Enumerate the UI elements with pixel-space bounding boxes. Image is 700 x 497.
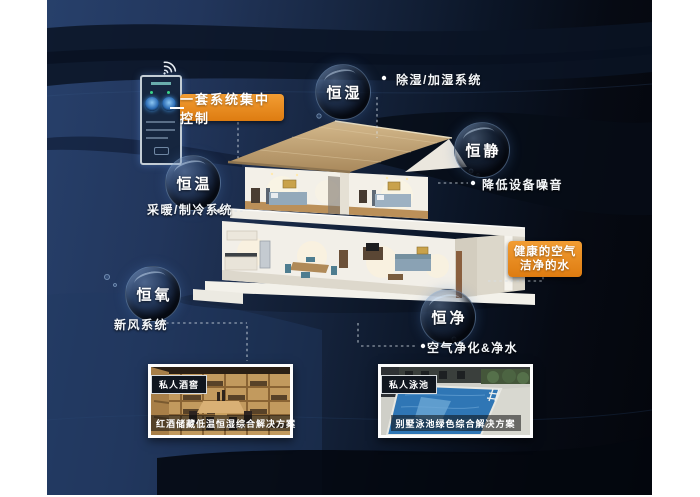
pool-tag: 私人泳池 — [381, 375, 437, 394]
bubble-constant-clean: 恒净 — [420, 289, 476, 345]
pool-caption: 别墅泳池绿色综合解决方案 — [390, 415, 520, 431]
panel-readout — [146, 121, 175, 123]
poster-canvas: 一套系统集中控制 健康的空气 洁净的水 恒湿 恒静 恒温 恒氧 恒净 除湿/加湿… — [0, 0, 700, 497]
clean-water-line: 洁净的水 — [510, 259, 580, 273]
label-dehumidify-system: 除湿/加湿系统 — [396, 71, 482, 88]
central-control-label: 一套系统集中控制 — [180, 94, 284, 121]
wine-cellar-caption: 红酒储藏低温恒湿综合解决方案 — [151, 415, 290, 431]
label-noise-reduction: 降低设备噪音 — [482, 176, 563, 193]
bubble-constant-quiet: 恒静 — [454, 122, 510, 178]
healthy-air-line: 健康的空气 — [510, 245, 580, 259]
pool-card: 私人泳池 别墅泳池绿色综合解决方案 — [378, 364, 533, 438]
smart-control-panel — [140, 75, 182, 165]
control-knob — [145, 97, 159, 111]
status-led — [167, 91, 170, 94]
label-fresh-air-system: 新风系统 — [114, 316, 168, 333]
panel-readout — [146, 137, 168, 139]
label-air-water-purify: 空气净化&净水 — [427, 339, 518, 356]
wine-cellar-card: 私人酒窖 红酒储藏低温恒湿综合解决方案 — [148, 364, 293, 438]
panel-readout — [146, 129, 175, 131]
bubble-constant-humidity: 恒湿 — [315, 64, 371, 120]
panel-title-bar — [151, 82, 171, 85]
wine-cellar-tag: 私人酒窖 — [151, 375, 207, 394]
label-heating-cooling: 采暖/制冷系统 — [147, 201, 233, 218]
status-led — [150, 91, 153, 94]
panel-button — [154, 147, 169, 155]
healthy-air-water-box: 健康的空气 洁净的水 — [508, 241, 582, 277]
bubble-constant-oxygen: 恒氧 — [125, 266, 181, 322]
scene: 一套系统集中控制 健康的空气 洁净的水 恒湿 恒静 恒温 恒氧 恒净 除湿/加湿… — [47, 0, 652, 495]
